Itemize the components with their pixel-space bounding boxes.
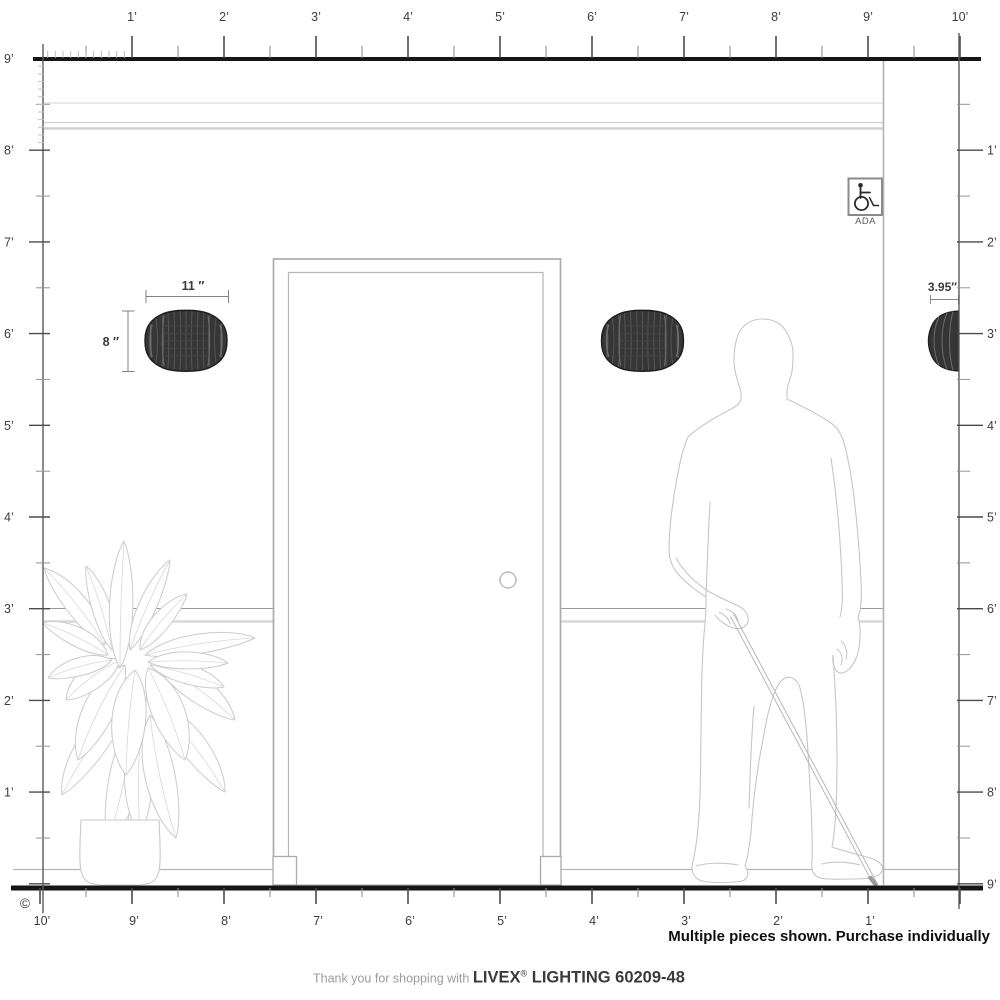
svg-text:6’: 6’: [587, 10, 597, 24]
svg-text:3.95″: 3.95″: [928, 280, 957, 294]
svg-text:4’: 4’: [4, 511, 14, 525]
svg-text:10’: 10’: [952, 10, 969, 24]
svg-text:5’: 5’: [4, 419, 14, 433]
svg-text:6’: 6’: [4, 327, 14, 341]
svg-text:7’: 7’: [679, 10, 689, 24]
svg-text:6’: 6’: [405, 914, 415, 928]
svg-text:2’: 2’: [4, 694, 14, 708]
svg-text:1’: 1’: [865, 914, 875, 928]
svg-text:11 ″: 11 ″: [182, 279, 205, 293]
svg-text:1’: 1’: [987, 144, 997, 158]
svg-text:7’: 7’: [4, 235, 14, 249]
svg-text:©: ©: [20, 896, 30, 911]
svg-text:9’: 9’: [4, 52, 14, 66]
svg-text:3’: 3’: [4, 602, 14, 616]
svg-text:Thank you for shopping with LI: Thank you for shopping with LIVEX® LIGHT…: [313, 969, 685, 987]
svg-text:8 ″: 8 ″: [103, 335, 119, 349]
svg-text:3’: 3’: [311, 10, 321, 24]
svg-text:7’: 7’: [987, 694, 997, 708]
svg-text:4’: 4’: [589, 914, 599, 928]
svg-text:8’: 8’: [987, 786, 997, 800]
svg-text:8’: 8’: [4, 144, 14, 158]
svg-text:ADA: ADA: [855, 216, 876, 227]
svg-text:9’: 9’: [129, 914, 139, 928]
svg-text:4’: 4’: [987, 419, 997, 433]
svg-text:9’: 9’: [987, 877, 997, 891]
svg-text:1’: 1’: [4, 786, 14, 800]
svg-text:1’: 1’: [127, 10, 137, 24]
svg-text:2’: 2’: [219, 10, 229, 24]
svg-text:Multiple pieces shown. Purchas: Multiple pieces shown. Purchase individu…: [668, 928, 990, 945]
svg-text:5’: 5’: [987, 511, 997, 525]
svg-text:6’: 6’: [987, 602, 997, 616]
svg-text:7’: 7’: [313, 914, 323, 928]
svg-text:2’: 2’: [773, 914, 783, 928]
svg-text:5’: 5’: [497, 914, 507, 928]
svg-text:4’: 4’: [403, 10, 413, 24]
svg-text:3’: 3’: [987, 327, 997, 341]
svg-text:10’: 10’: [34, 914, 51, 928]
svg-text:2’: 2’: [987, 235, 997, 249]
svg-text:5’: 5’: [495, 10, 505, 24]
svg-text:3’: 3’: [681, 914, 691, 928]
svg-text:8’: 8’: [221, 914, 231, 928]
svg-text:8’: 8’: [771, 10, 781, 24]
svg-text:9’: 9’: [863, 10, 873, 24]
